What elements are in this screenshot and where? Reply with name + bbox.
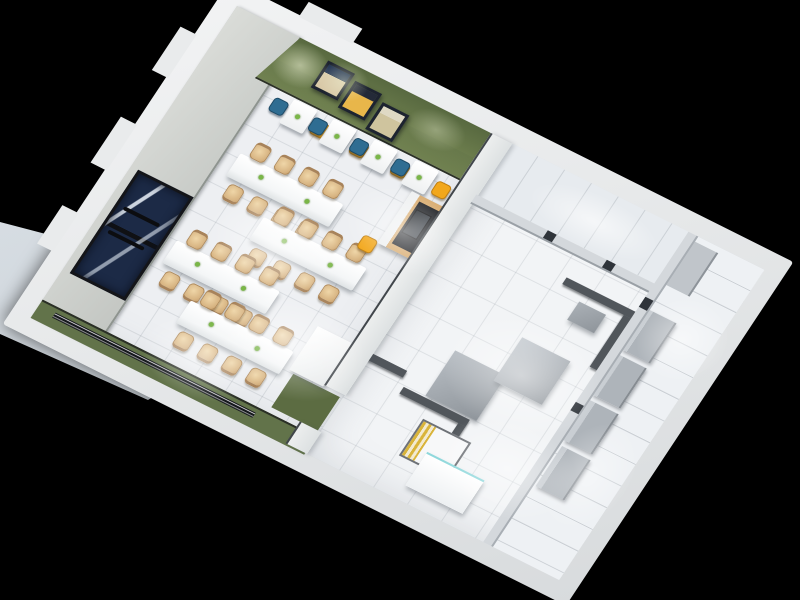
table-plant bbox=[194, 261, 201, 267]
table-plant bbox=[333, 133, 340, 139]
table-plant bbox=[281, 238, 288, 244]
table-plant bbox=[327, 262, 334, 268]
render-canvas bbox=[0, 0, 800, 600]
table-plant bbox=[257, 174, 264, 180]
door-handle bbox=[107, 230, 145, 251]
table-plant bbox=[254, 345, 261, 351]
table-plant bbox=[374, 154, 381, 160]
table-plant bbox=[208, 321, 215, 327]
table-plant bbox=[416, 174, 423, 180]
building-plan bbox=[32, 6, 765, 580]
door-handle bbox=[122, 206, 160, 227]
table-plant bbox=[294, 114, 301, 120]
table-plant bbox=[240, 285, 247, 291]
table-plant bbox=[303, 198, 310, 204]
